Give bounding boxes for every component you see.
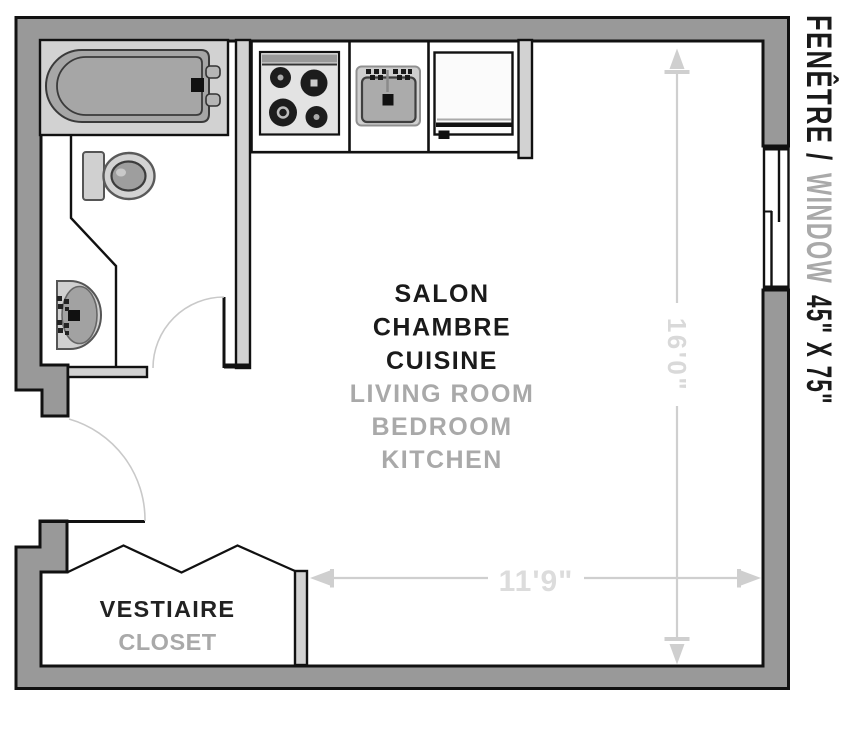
svg-text:SALON: SALON — [395, 280, 490, 308]
svg-text:WINDOW: WINDOW — [799, 173, 838, 284]
svg-text:BEDROOM: BEDROOM — [371, 413, 512, 441]
svg-text:CLOSET: CLOSET — [118, 629, 216, 655]
svg-text:45" X 75": 45" X 75" — [799, 295, 838, 405]
svg-text:LIVING ROOM: LIVING ROOM — [350, 380, 535, 408]
svg-text:VESTIAIRE: VESTIAIRE — [100, 596, 236, 622]
svg-text:CHAMBRE: CHAMBRE — [373, 314, 511, 342]
svg-text:11'9": 11'9" — [499, 565, 574, 598]
svg-text:16'0": 16'0" — [662, 318, 692, 392]
svg-text:KITCHEN: KITCHEN — [381, 446, 503, 474]
svg-text:CUISINE: CUISINE — [386, 347, 498, 375]
svg-text:FENÊTRE /: FENÊTRE / — [799, 15, 840, 162]
